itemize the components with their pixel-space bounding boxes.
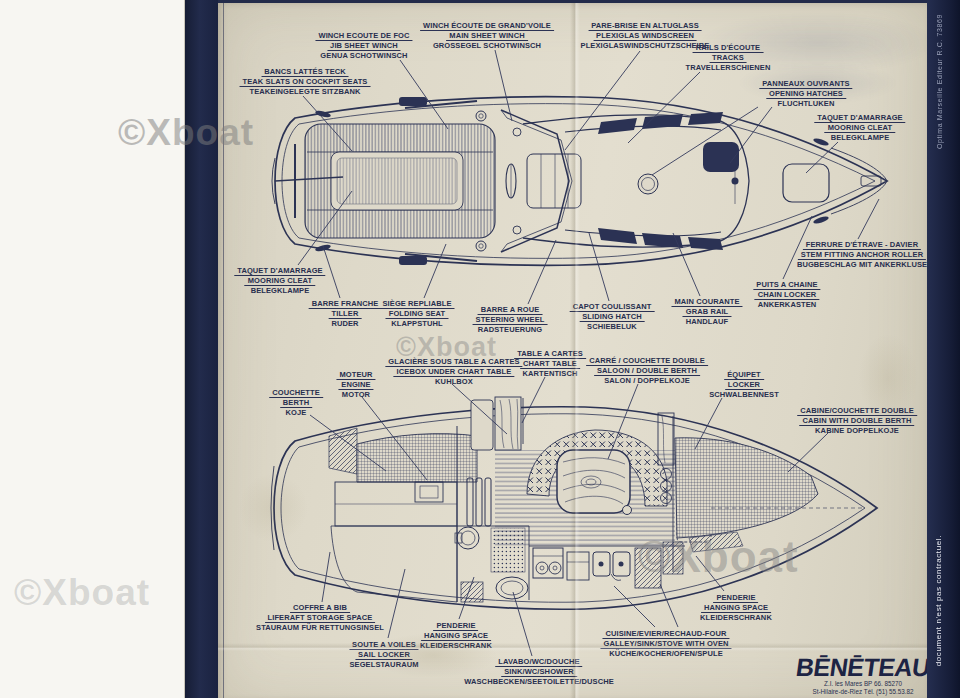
callout-sliding-hatch: CAPOT COULISSANTSLIDING HATCHSCHIEBELUK — [570, 302, 655, 331]
callout-tracks: RAILS D'ÉCOUTETRACKSTRAVELLERSCHIENEN — [683, 43, 774, 72]
callout-grab-rail-de: HANDLAUF — [683, 317, 731, 326]
callout-liferaft-storage-en: LIFERAFT STORAGE SPACE — [265, 613, 376, 623]
callout-tracks-en: TRACKS — [709, 53, 747, 63]
callout-opening-hatches-de: FLUCHTLUKEN — [775, 99, 838, 108]
callout-main-sheet-winch-de: GROSSEGEL SCHOTWINSCH — [430, 41, 544, 50]
callout-tracks-fr: RAILS D'ÉCOUTE — [693, 43, 763, 53]
callout-saloon-double-berth-en: SALOON / DOUBLE BERTH — [594, 366, 700, 376]
callout-folding-seat-en: FOLDING SEAT — [386, 309, 448, 319]
callout-mooring-cleat-fwd: TAQUET D'AMARRAGEMOORING CLEATBELEGKLAMP… — [814, 113, 905, 142]
beneteau-logo-block: BĒNĒTEAU Z.I. les Mares BP 66. 85270 St-… — [793, 655, 933, 695]
callout-sliding-hatch-de: SCHIEBELUK — [584, 322, 640, 331]
callout-mooring-cleat-aft-de: BELEGKLAMPE — [248, 286, 313, 295]
callout-liferaft-storage: COFFRE A BIBLIFERAFT STORAGE SPACESTAURA… — [253, 603, 387, 632]
callout-sliding-hatch-fr: CAPOT COULISSANT — [570, 302, 655, 312]
callout-stem-fitting-fr: FERRURE D'ÉTRAVE - DAVIER — [803, 240, 921, 250]
callout-mooring-cleat-fwd-en: MOORING CLEAT — [825, 123, 896, 133]
callout-mooring-cleat-aft-fr: TAQUET D'AMARRAGE — [234, 266, 325, 276]
leader-line-locker — [695, 398, 722, 449]
callout-stem-fitting-en: STEM FITTING ANCHOR ROLLER — [798, 250, 926, 260]
callout-galley-fr: CUISINE/EVIER/RECHAUD-FOUR — [603, 629, 730, 639]
callout-sink-wc-shower-de: WASCHBECKEN/SEETOILETTE/DUSCHE — [461, 677, 617, 686]
callout-jib-sheet-winch-de: GENUA SCHOTWINSCH — [317, 51, 410, 60]
leader-line-mooring-cleat-aft — [298, 191, 352, 265]
callout-icebox-en: ICEBOX UNDER CHART TABLE — [394, 367, 515, 377]
callout-tiller-en: TILLER — [329, 309, 362, 319]
callout-hanging-space-fwd-fr: PENDERIE — [713, 593, 758, 603]
leader-line-engine — [362, 397, 427, 480]
callout-berth-de: KOJE — [283, 408, 310, 417]
leader-line-hanging-space-aft — [459, 577, 474, 619]
callout-mooring-cleat-aft-en: MOORING CLEAT — [245, 276, 316, 286]
callout-stem-fitting: FERRURE D'ÉTRAVE - DAVIERSTEM FITTING AN… — [794, 240, 930, 269]
callout-teak-slats-en: TEAK SLATS ON COCKPIT SEATS — [240, 77, 371, 87]
callout-steering-wheel-en: STEERING WHEEL — [473, 315, 548, 325]
callout-main-sheet-winch-en: MAIN SHEET WINCH — [446, 31, 527, 41]
callout-saloon-double-berth: CARRÉ / COUCHETTE DOUBLESALOON / DOUBLE … — [586, 356, 708, 385]
callout-folding-seat: SIÈGE REPLIABLEFOLDING SEATKLAPPSTUHL — [379, 299, 454, 328]
callout-opening-hatches-fr: PANNEAUX OUVRANTS — [759, 79, 852, 89]
right-navy-edge — [927, 0, 960, 698]
callout-windscreen-fr: PARE-BRISE EN ALTUGLASS — [588, 21, 702, 31]
leader-line-jib-sheet-winch — [400, 60, 448, 129]
callout-stem-fitting-de: BUGBESCHLAG MIT ANKERKLUSE — [794, 260, 930, 269]
logo-address-line2: St-Hilaire-de-Riez Tél. (51) 55.53.82 — [793, 688, 933, 696]
callout-sliding-hatch-en: SLIDING HATCH — [579, 312, 645, 322]
callout-berth-fr: COUCHETTE — [269, 388, 323, 398]
xboat-watermark: ©Xboat — [118, 112, 254, 154]
callout-hanging-space-fwd: PENDERIEHANGING SPACEKLEIDERSCHRANK — [697, 593, 775, 622]
callout-chain-locker-de: ANKERKASTEN — [755, 300, 820, 309]
leader-line-folding-seat — [424, 244, 446, 298]
leader-line-saloon-double-berth — [608, 384, 638, 459]
callout-jib-sheet-winch: WINCH ECOUTE DE FOCJIB SHEET WINCHGENUA … — [315, 31, 412, 60]
callout-icebox-de: KUHLBOX — [432, 377, 476, 386]
callout-opening-hatches: PANNEAUX OUVRANTSOPENING HATCHESFLUCHTLU… — [759, 79, 852, 108]
callout-hanging-space-fwd-en: HANGING SPACE — [701, 603, 771, 613]
xboat-watermark: ©Xboat — [638, 532, 799, 582]
paper-stain — [368, 633, 498, 678]
leader-line-main-sheet-winch — [495, 50, 512, 121]
callout-liferaft-storage-de: STAURAUM FÜR RETTUNGSINSEL — [253, 623, 387, 632]
logo-address-line1: Z.I. les Mares BP 66. 85270 — [793, 680, 933, 688]
callout-locker-de: SCHWALBENNEST — [706, 390, 782, 399]
fold-crease — [218, 643, 927, 651]
callout-tiller-de: RUDER — [328, 319, 361, 328]
callout-locker: ÉQUIPETLOCKERSCHWALBENNEST — [706, 370, 782, 399]
callout-teak-slats-fr: BANCS LATTÉS TECK — [261, 67, 349, 77]
paper-stain — [238, 473, 308, 543]
leader-line-steering-wheel — [528, 240, 556, 304]
callout-hanging-space-fwd-de: KLEIDERSCHRANK — [697, 613, 775, 622]
callout-tracks-de: TRAVELLERSCHIENEN — [683, 63, 774, 72]
callout-steering-wheel: BARRE A ROUESTEERING WHEELRADSTEUERUNG — [473, 305, 548, 334]
callout-teak-slats-de: TEAKEINGELEGTE SITZBANK — [246, 87, 363, 96]
leader-line-mooring-cleat-fwd — [806, 142, 838, 173]
callout-chain-locker: PUITS A CHAINECHAIN LOCKERANKERKASTEN — [753, 280, 820, 309]
leader-line-opening-hatches — [730, 107, 772, 163]
callout-grab-rail-fr: MAIN COURANTE — [671, 297, 742, 307]
callout-jib-sheet-winch-fr: WINCH ECOUTE DE FOC — [315, 31, 412, 41]
leader-line-tracks — [628, 72, 700, 143]
leader-line-galley — [660, 584, 678, 627]
callout-opening-hatches-en: OPENING HATCHES — [766, 89, 846, 99]
leader-line-teak-slats — [303, 96, 352, 151]
callout-engine-fr: MOTEUR — [336, 370, 375, 380]
callout-saloon-double-berth-de: SALON / DOPPELKOJE — [601, 376, 693, 385]
leader-line-liferaft-storage — [322, 552, 330, 602]
callout-mooring-cleat-aft: TAQUET D'AMARRAGEMOORING CLEATBELEGKLAMP… — [234, 266, 325, 295]
callout-hanging-space-aft-fr: PENDERIE — [433, 621, 478, 631]
brochure-page: WINCH ECOUTE DE FOCJIB SHEET WINCHGENUA … — [218, 0, 927, 698]
paper-stain — [858, 333, 918, 423]
printer-credit: Optima Marseille Editeur R.C. 73869 — [936, 14, 943, 149]
leader-line-opening-hatches — [652, 107, 758, 175]
callout-locker-fr: ÉQUIPET — [724, 370, 764, 380]
callout-main-sheet-winch: WINCH ÉCOUTE DE GRAND'VOILEMAIN SHEET WI… — [420, 21, 554, 50]
callout-mooring-cleat-fwd-de: BELEGKLAMPE — [828, 133, 893, 142]
leader-line-stem-fitting — [858, 199, 879, 239]
callout-tiller-fr: BARRE FRANCHE — [309, 299, 382, 309]
callout-teak-slats: BANCS LATTÉS TECKTEAK SLATS ON COCKPIT S… — [240, 67, 371, 96]
callout-berth: COUCHETTEBERTHKOJE — [269, 388, 323, 417]
callout-jib-sheet-winch-en: JIB SHEET WINCH — [327, 41, 401, 51]
leader-line-grab-rail — [673, 233, 700, 296]
leader-line-berth — [310, 415, 386, 471]
callout-grab-rail-en: GRAB RAIL — [683, 307, 732, 317]
xboat-watermark: ©Xboat — [14, 572, 150, 614]
callout-engine-en: ENGINE — [338, 380, 373, 390]
scanned-brochure-scan: WINCH ECOUTE DE FOCJIB SHEET WINCHGENUA … — [0, 0, 960, 698]
callout-folding-seat-fr: SIÈGE REPLIABLE — [379, 299, 454, 309]
callout-berth-en: BERTH — [280, 398, 312, 408]
leader-line-icebox — [452, 384, 507, 434]
leader-line-sliding-hatch — [589, 233, 609, 301]
callout-grab-rail: MAIN COURANTEGRAB RAILHANDLAUF — [671, 297, 742, 326]
callout-engine: MOTEURENGINEMOTOR — [336, 370, 375, 399]
beneteau-logo: BĒNĒTEAU — [791, 655, 935, 680]
disclaimer-text: document n'est pas contractuel. — [934, 535, 943, 666]
callout-windscreen-en: PLEXIGLAS WINDSCREEN — [593, 31, 697, 41]
callout-main-sheet-winch-fr: WINCH ÉCOUTE DE GRAND'VOILE — [420, 21, 554, 31]
callout-chain-locker-fr: PUITS A CHAINE — [753, 280, 820, 290]
callout-sink-wc-shower-en: SINK/WC/SHOWER — [501, 667, 577, 677]
fold-crease — [570, 3, 580, 698]
callout-liferaft-storage-fr: COFFRE A BIB — [290, 603, 350, 613]
callout-engine-de: MOTOR — [339, 390, 373, 399]
callout-chain-locker-en: CHAIN LOCKER — [755, 290, 820, 300]
callout-mooring-cleat-fwd-fr: TAQUET D'AMARRAGE — [814, 113, 905, 123]
leader-line-galley — [614, 586, 655, 627]
callout-cabin-double-berth-de: KABINE DOPPELKOJE — [812, 426, 902, 435]
callout-folding-seat-de: KLAPPSTUHL — [388, 319, 445, 328]
leader-line-sail-locker — [388, 569, 405, 638]
xboat-watermark: ©Xboat — [396, 332, 497, 363]
callout-tiller: BARRE FRANCHETILLERRUDER — [309, 299, 382, 328]
callout-saloon-double-berth-fr: CARRÉ / COUCHETTE DOUBLE — [586, 356, 708, 366]
leader-line-cabin-double-berth — [788, 433, 828, 472]
callout-steering-wheel-fr: BARRE A ROUE — [478, 305, 543, 315]
leader-line-chart-table — [522, 377, 545, 423]
callout-locker-en: LOCKER — [725, 380, 763, 390]
